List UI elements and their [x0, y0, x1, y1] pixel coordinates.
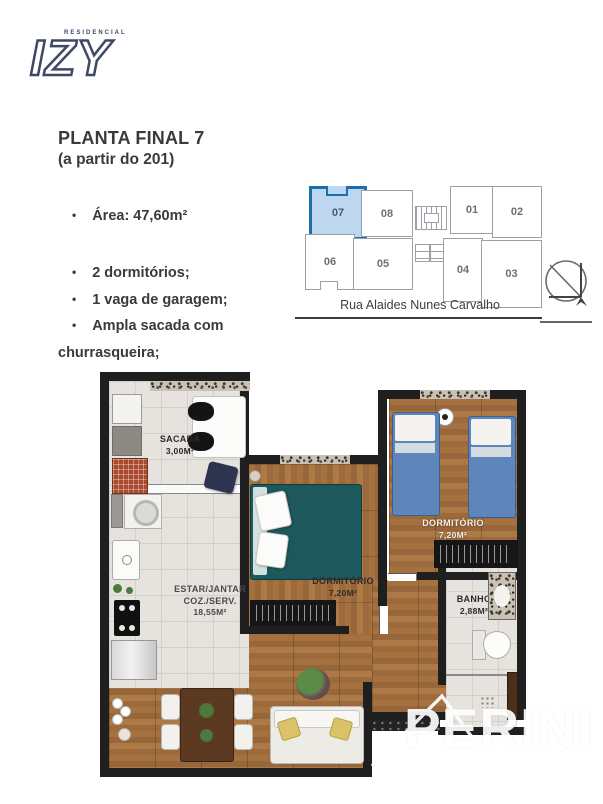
wall [363, 712, 446, 720]
spacer [58, 169, 293, 203]
shower-drain [480, 696, 496, 708]
single-bed-2 [468, 416, 516, 518]
bowl [118, 728, 131, 741]
table-plant [199, 703, 214, 718]
room-name: SACADA [160, 434, 200, 444]
sink-drain [122, 555, 132, 565]
kitchen-plant [113, 584, 122, 593]
bath-sink [488, 572, 516, 620]
dining-chair [234, 694, 253, 720]
plan-subtitle: (a partir do 201) [58, 151, 293, 169]
plan-title: PLANTA FINAL 7 [58, 128, 293, 149]
burner [119, 605, 125, 611]
kitchen-shelf [111, 494, 123, 528]
room-name: ESTAR/JANTAR [174, 584, 246, 594]
room-area: 7,20M² [439, 530, 467, 540]
grill-icon [112, 458, 148, 494]
keyplan-unit-04: 04 [443, 238, 483, 302]
floor-plan: SACADA 3,00M² ESTAR/JANTAR COZ./SERV. 18… [100, 372, 540, 780]
plan-info: PLANTA FINAL 7 (a partir do 201) •Área: … [58, 128, 293, 367]
dorm2-wardrobe [434, 540, 518, 568]
keyplan-unit-02: 02 [492, 186, 542, 238]
wall [100, 768, 372, 777]
washer-drum [133, 500, 159, 526]
stairs-cabin [424, 213, 439, 223]
washer-icon [124, 494, 162, 529]
bullet-icon: • [72, 288, 76, 310]
bed-pillow [471, 419, 511, 445]
sofa [270, 706, 364, 764]
hanger-ticks [256, 605, 330, 621]
keyplan-unit-05: 05 [353, 238, 413, 290]
unit-notch [326, 186, 348, 196]
street-line [295, 317, 542, 319]
room-area: 7,20M² [329, 588, 357, 598]
plate [112, 714, 123, 725]
unit-label: 05 [377, 258, 389, 270]
bullet-icon: • [72, 204, 76, 226]
bullet-garage: •1 vaga de garagem; [58, 287, 293, 314]
floor-plant [296, 668, 330, 700]
keyplan-unit-06: 06 [305, 234, 355, 290]
bath-door [507, 672, 518, 720]
bullet-dorms-text: 2 dormitórios; [92, 265, 189, 281]
bullet-icon: • [72, 314, 76, 336]
elevator-cab [415, 244, 430, 262]
burner [119, 625, 125, 631]
dorm2-label: DORMITÓRIO 7,20M² [398, 518, 508, 541]
double-bed [250, 484, 362, 580]
keyplan-unit-08: 08 [361, 190, 413, 237]
table-plant [200, 729, 213, 742]
single-bed-1 [392, 412, 440, 516]
room-name: COZ./SERV. [183, 596, 236, 606]
light-center [442, 414, 448, 420]
stairs-icon [415, 206, 447, 230]
dining-table [180, 688, 234, 762]
keyplan-unit-01: 01 [450, 186, 494, 234]
bullet-sacada-text: Ampla sacada com churrasqueira; [58, 318, 224, 361]
dorm2-window [420, 390, 490, 399]
wall [100, 372, 109, 777]
unit-label: 02 [511, 206, 523, 218]
sacada-counter [150, 381, 250, 391]
wall [378, 390, 387, 606]
sideboard-decor [112, 698, 128, 742]
burner [129, 605, 135, 611]
keyplan-unit-07: 07 [309, 186, 367, 240]
dorm1-window [280, 455, 350, 464]
wall [517, 390, 526, 720]
key-plan: 07 08 01 02 06 05 04 03 Rua Alaides Nune… [295, 178, 545, 323]
bullet-area-text: Área: 47,60m² [92, 208, 187, 224]
unit-label: 04 [457, 264, 469, 276]
hanger-ticks [440, 545, 512, 563]
room-area: 3,00M² [166, 446, 194, 456]
unit-label: 03 [505, 268, 517, 280]
dining-chair [234, 724, 253, 750]
sofa-pillow [329, 717, 354, 742]
elevator-icon [415, 244, 445, 262]
unit-label: 06 [324, 256, 336, 268]
bed-sheet [395, 443, 435, 453]
compass-line [540, 321, 592, 323]
bullet-icon: • [72, 261, 76, 283]
spacer [58, 230, 293, 260]
sacada-bench [112, 426, 142, 456]
unit-label: 08 [381, 208, 393, 220]
room-area: 2,88M² [460, 606, 488, 616]
bullet-dorms: •2 dormitórios; [58, 260, 293, 287]
room-name: BANHO [457, 594, 492, 604]
fridge-icon [111, 640, 157, 680]
wall [438, 565, 446, 685]
bed-pillow [395, 415, 435, 441]
sink-icon [112, 540, 140, 580]
logo-brand: IZY [30, 36, 180, 81]
basin [494, 585, 510, 607]
room-area: 18,55M² [193, 607, 226, 617]
street-label: Rua Alaides Nunes Carvalho [295, 298, 545, 312]
bed-pillow [254, 490, 293, 532]
unit-notch [320, 281, 338, 290]
dorm1-wardrobe [250, 600, 336, 626]
wall [100, 372, 250, 381]
dining-chair [161, 724, 180, 750]
sacada-label: SACADA 3,00M² [140, 434, 220, 457]
north-arrow-icon [541, 256, 593, 312]
room-name: DORMITÓRIO [312, 576, 374, 586]
bed-pillow [255, 531, 289, 569]
izy-logo: RESIDENCIAL IZY [30, 30, 180, 110]
burner [129, 625, 135, 631]
wall [363, 682, 372, 777]
bullet-area: •Área: 47,60m² [58, 203, 293, 230]
tv-rack [372, 720, 440, 731]
dorm1-door [379, 606, 388, 634]
wall [438, 727, 526, 735]
cooktop-icon [114, 600, 140, 636]
unit-label: 01 [466, 204, 478, 216]
wall [249, 626, 349, 634]
unit-label: 07 [332, 207, 344, 219]
dorm1-label: DORMITÓRIO 7,20M² [288, 576, 398, 599]
floorplan-flyer: RESIDENCIAL IZY PLANTA FINAL 7 (a partir… [0, 0, 603, 804]
bed-sheet [471, 447, 511, 457]
kitchen-plant [126, 587, 133, 594]
nightstand-lamp [249, 470, 261, 482]
dining-chair [161, 694, 180, 720]
sacada-cabinet [112, 394, 142, 424]
room-name: DORMITÓRIO [422, 518, 484, 528]
sacada-chair [188, 402, 214, 421]
bullet-garage-text: 1 vaga de garagem; [92, 292, 227, 308]
bullet-sacada: •Ampla sacada com churrasqueira; [58, 313, 293, 367]
